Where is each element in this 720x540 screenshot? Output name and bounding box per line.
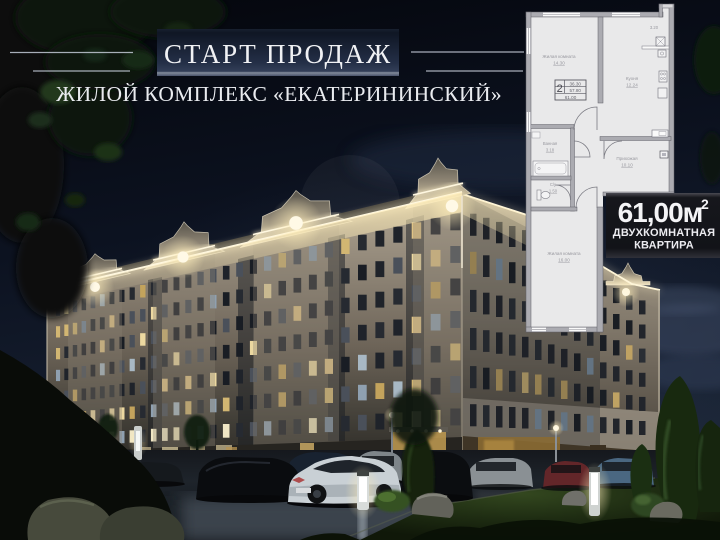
svg-text:2: 2 <box>557 83 563 95</box>
svg-text:57.80: 57.80 <box>569 88 581 93</box>
svg-text:14.30: 14.30 <box>553 61 565 66</box>
svg-text:12.24: 12.24 <box>626 83 638 88</box>
svg-text:1.50: 1.50 <box>549 189 558 194</box>
svg-text:СТАРТ ПРОДАЖ: СТАРТ ПРОДАЖ <box>164 39 392 69</box>
svg-text:36.30: 36.30 <box>569 82 581 87</box>
svg-text:Прихожая: Прихожая <box>616 156 638 161</box>
svg-text:Жилая комната: Жилая комната <box>542 54 576 59</box>
svg-text:Жилая комната: Жилая комната <box>547 251 581 256</box>
svg-text:КВАРТИРА: КВАРТИРА <box>634 240 694 252</box>
svg-text:С/у: С/у <box>550 182 557 187</box>
svg-text:ЖИЛОЙ КОМПЛЕКС «ЕКАТЕРИНИНСКИЙ: ЖИЛОЙ КОМПЛЕКС «ЕКАТЕРИНИНСКИЙ» <box>56 82 502 106</box>
svg-text:10.10: 10.10 <box>621 163 633 168</box>
svg-text:Кухня: Кухня <box>626 76 639 81</box>
svg-text:61,00м: 61,00м <box>618 197 703 228</box>
svg-text:ДВУХКОМНАТНАЯ: ДВУХКОМНАТНАЯ <box>613 227 715 239</box>
svg-text:2: 2 <box>701 196 709 212</box>
svg-text:61.00: 61.00 <box>565 95 577 100</box>
svg-text:3.20: 3.20 <box>650 25 659 30</box>
svg-text:Ванная: Ванная <box>543 141 557 146</box>
svg-text:3.18: 3.18 <box>546 148 555 153</box>
svg-text:16.00: 16.00 <box>558 258 570 263</box>
